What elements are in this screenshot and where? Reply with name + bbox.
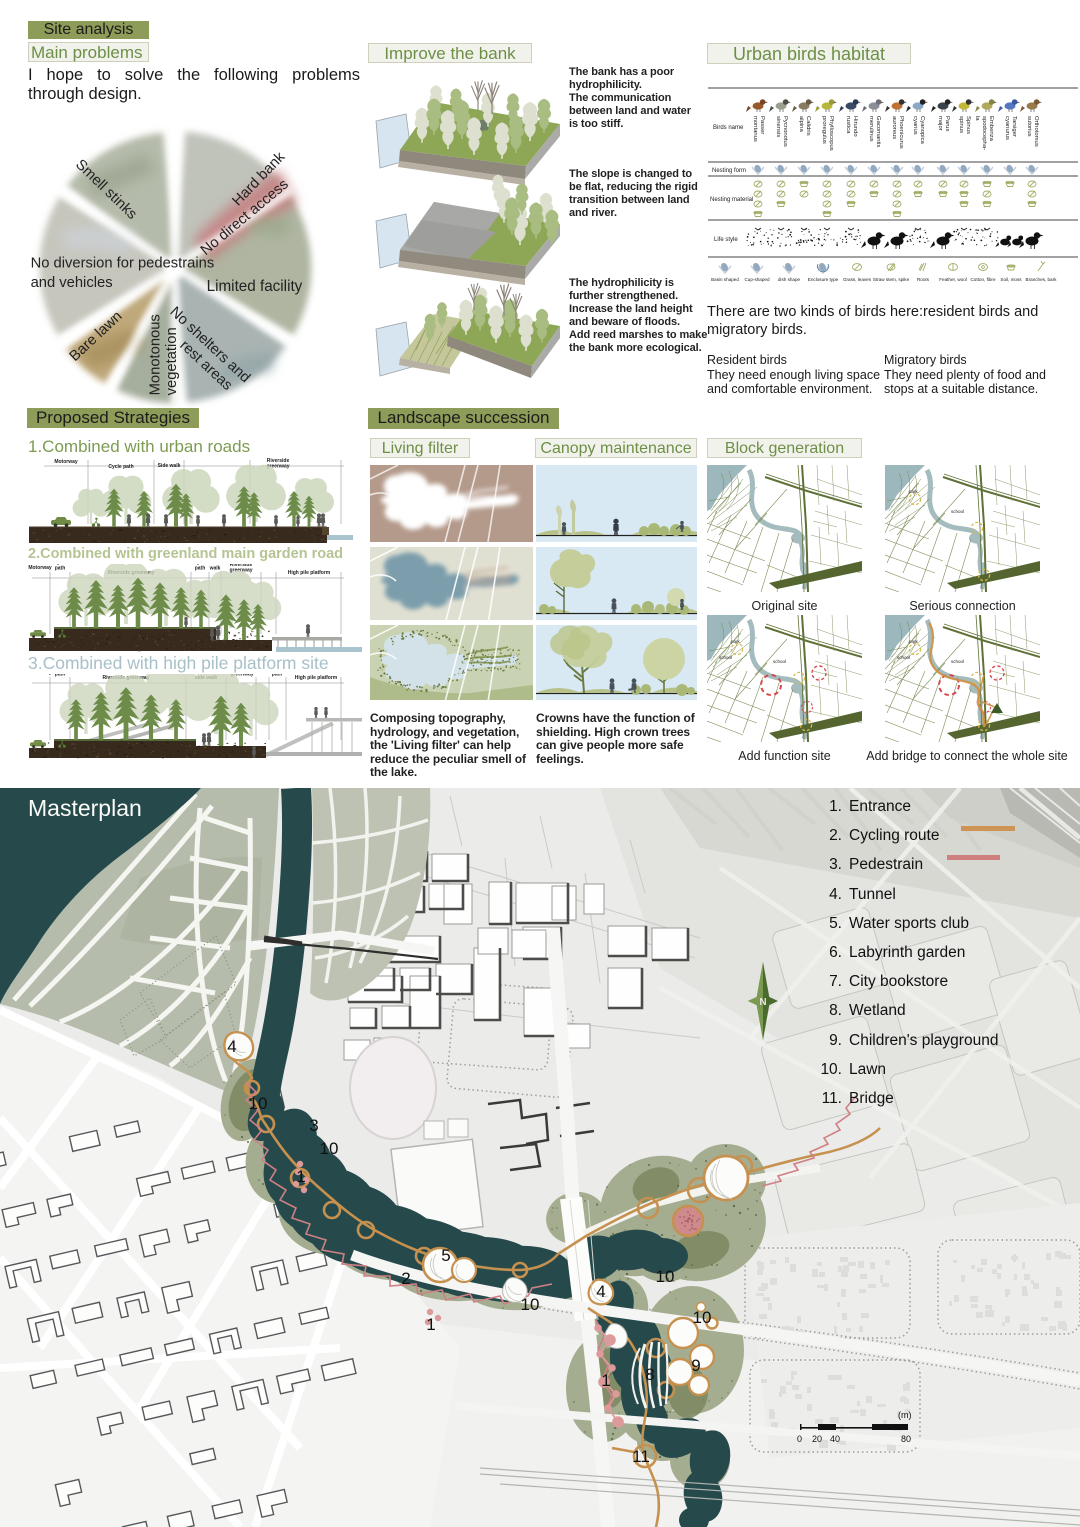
svg-text:Calidrisalpina: Calidrisalpina <box>798 116 811 136</box>
svg-text:4: 4 <box>227 1037 236 1056</box>
svg-text:dish shape: dish shape <box>778 277 801 282</box>
svg-text:Cycle path: Cycle path <box>108 464 133 470</box>
svg-text:2: 2 <box>401 1269 410 1288</box>
svg-text:school: school <box>719 655 732 660</box>
svg-text:Spinusspinus: Spinusspinus <box>958 116 971 134</box>
svg-text:path: path <box>55 674 66 678</box>
svg-text:school: school <box>773 659 786 664</box>
svg-text:Soil, moss: Soil, moss <box>1000 277 1022 282</box>
svg-text:Motorway: Motorway <box>54 459 78 465</box>
svg-text:40: 40 <box>830 1434 840 1444</box>
svg-text:3: 3 <box>309 1116 318 1135</box>
svg-text:10: 10 <box>521 1295 540 1314</box>
svg-text:Enclosure type: Enclosure type <box>808 277 839 282</box>
svg-text:1: 1 <box>601 1371 610 1390</box>
svg-text:Emberizaspodocepha-la: Emberizaspodocepha-la <box>974 116 994 150</box>
svg-text:Cotton, fibre: Cotton, fibre <box>970 277 995 282</box>
svg-text:1: 1 <box>296 1167 305 1186</box>
svg-text:1: 1 <box>426 1315 435 1334</box>
svg-text:park: park <box>909 489 919 494</box>
svg-text:Limited facility: Limited facility <box>207 278 303 295</box>
svg-text:9: 9 <box>691 1356 700 1375</box>
svg-text:path: path <box>55 566 66 572</box>
svg-text:20: 20 <box>812 1434 822 1444</box>
svg-text:walk: walk <box>209 566 221 572</box>
svg-text:(m): (m) <box>898 1410 912 1420</box>
svg-text:8: 8 <box>645 1365 654 1384</box>
svg-text:path: path <box>195 566 206 572</box>
svg-text:Monotonous: Monotonous <box>147 314 163 395</box>
svg-text:High pile platform: High pile platform <box>295 675 338 681</box>
svg-text:Life style: Life style <box>714 237 738 243</box>
svg-text:Phylloscopusproregulus: Phylloscopusproregulus <box>821 116 834 151</box>
svg-text:Grass, leaves: Grass, leaves <box>843 277 872 282</box>
svg-text:school: school <box>897 655 910 660</box>
svg-text:4: 4 <box>596 1282 605 1301</box>
svg-text:Straw stem, spike: Straw stem, spike <box>873 277 910 282</box>
svg-text:school: school <box>951 659 964 664</box>
svg-text:Pycnonotussinensis: Pycnonotussinensis <box>775 116 788 147</box>
svg-text:park: park <box>731 639 741 644</box>
svg-text:10: 10 <box>249 1094 268 1113</box>
svg-text:Basin shaped: Basin shaped <box>711 277 739 282</box>
svg-text:Parusmajor: Parusmajor <box>937 116 950 131</box>
svg-text:Side walk: Side walk <box>158 463 181 469</box>
svg-text:Feather, wool: Feather, wool <box>939 277 967 282</box>
svg-text:park: park <box>909 639 919 644</box>
svg-text:Branches, bark: Branches, bark <box>1026 277 1058 282</box>
svg-text:N: N <box>759 997 766 1008</box>
svg-text:Nesting material: Nesting material <box>710 197 753 203</box>
svg-text:10: 10 <box>656 1267 675 1286</box>
svg-text:11: 11 <box>632 1447 650 1466</box>
svg-text:5: 5 <box>441 1246 450 1265</box>
svg-text:Motorway: Motorway <box>28 565 52 571</box>
svg-text:Phoenicurusauroreus: Phoenicurusauroreus <box>891 116 904 149</box>
svg-text:0: 0 <box>797 1434 802 1444</box>
svg-text:Passermontanus: Passermontanus <box>752 116 765 142</box>
svg-text:Masterplan: Masterplan <box>28 795 142 821</box>
svg-text:Tarsigercyanurus: Tarsigercyanurus <box>1004 116 1017 140</box>
svg-text:Hirundorustica: Hirundorustica <box>845 116 858 137</box>
svg-text:Orthotomussutorius: Orthotomussutorius <box>1026 116 1039 147</box>
svg-text:path: path <box>272 674 283 678</box>
svg-text:10: 10 <box>693 1308 712 1327</box>
svg-text:Gacomantismerulinus: Gacomantismerulinus <box>868 116 881 147</box>
svg-text:Roots: Roots <box>917 277 930 282</box>
svg-text:Birds name: Birds name <box>713 125 744 131</box>
svg-text:school: school <box>951 509 964 514</box>
svg-text:Motorway: Motorway <box>28 674 52 676</box>
svg-text:Nesting form: Nesting form <box>712 168 746 174</box>
svg-text:Cup-shaped: Cup-shaped <box>744 277 769 282</box>
svg-text:vegetation: vegetation <box>164 327 180 395</box>
svg-text:10: 10 <box>320 1139 339 1158</box>
svg-text:80: 80 <box>901 1434 911 1444</box>
svg-text:Cyanopicacyanus: Cyanopicacyanus <box>912 116 925 145</box>
svg-text:High pile platform: High pile platform <box>288 570 331 576</box>
